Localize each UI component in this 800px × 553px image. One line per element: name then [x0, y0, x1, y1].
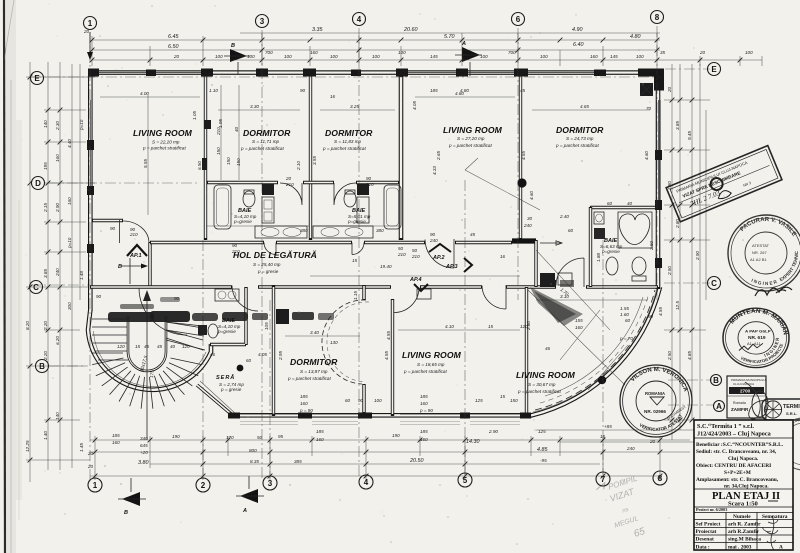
- svg-text:2.50: 2.50: [649, 241, 654, 251]
- svg-text:185: 185: [300, 394, 308, 399]
- svg-text:3.40: 3.40: [310, 330, 319, 335]
- svg-text:2.20: 2.20: [43, 321, 48, 331]
- svg-text:30: 30: [527, 216, 533, 221]
- svg-text:385: 385: [294, 459, 302, 464]
- svg-text:B: B: [39, 362, 45, 371]
- svg-text:60: 60: [625, 318, 631, 323]
- svg-text:S = 22,20 mp: S = 22,20 mp: [152, 140, 180, 145]
- svg-text:AP.3: AP.3: [445, 264, 458, 270]
- svg-text:2.65: 2.65: [436, 151, 441, 161]
- svg-text:2.90: 2.90: [695, 251, 700, 261]
- svg-text:S+P+2E+M: S+P+2E+M: [724, 470, 751, 476]
- svg-text:380: 380: [300, 228, 308, 233]
- svg-text:380: 380: [376, 228, 384, 233]
- svg-text:100: 100: [372, 54, 380, 59]
- svg-text:p = gresie: p = gresie: [257, 269, 279, 274]
- svg-text:100: 100: [215, 54, 223, 59]
- svg-text:16: 16: [330, 94, 336, 99]
- svg-text:LIVING ROOM: LIVING ROOM: [443, 125, 503, 135]
- svg-text:p = parchet stratificat: p = parchet stratificat: [322, 146, 366, 151]
- svg-text:LIVING ROOM: LIVING ROOM: [133, 128, 193, 138]
- svg-text:p=10: p=10: [79, 119, 84, 131]
- svg-text:6: 6: [516, 15, 521, 24]
- svg-text:3.55: 3.55: [312, 156, 317, 165]
- svg-text:Desenat: Desenat: [696, 537, 714, 543]
- svg-text:45: 45: [144, 344, 150, 349]
- svg-text:ZAMFIR: ZAMFIR: [731, 407, 749, 412]
- svg-text:240: 240: [55, 268, 60, 277]
- svg-text:9.45: 9.45: [687, 131, 692, 140]
- svg-text:4.60: 4.60: [529, 191, 534, 200]
- svg-text:C: C: [33, 283, 39, 292]
- svg-text:15: 15: [500, 394, 506, 399]
- svg-text:E: E: [711, 65, 717, 74]
- svg-text:15: 15: [135, 344, 141, 349]
- svg-text:60: 60: [607, 201, 613, 206]
- svg-text:p = parchet stratificat: p = parchet stratificat: [287, 376, 331, 381]
- svg-text:160: 160: [67, 197, 72, 205]
- svg-text:2700: 2700: [740, 389, 751, 394]
- svg-text:160: 160: [590, 54, 598, 59]
- svg-text:2.95: 2.95: [278, 351, 283, 361]
- svg-text:4.85: 4.85: [687, 351, 692, 360]
- svg-text:90: 90: [366, 176, 372, 181]
- svg-text:3.85: 3.85: [675, 121, 680, 130]
- svg-text:B: B: [124, 510, 128, 516]
- svg-text:140: 140: [55, 412, 60, 420]
- svg-text:60: 60: [345, 398, 351, 403]
- svg-text:1.05: 1.05: [192, 111, 197, 120]
- svg-text:20: 20: [667, 86, 672, 93]
- svg-text:1.48: 1.48: [79, 271, 84, 280]
- svg-text:A: A: [779, 545, 783, 551]
- svg-text:CLUJ-NAPOCA: CLUJ-NAPOCA: [733, 382, 754, 386]
- svg-text:p = parchet stratificat: p = parchet stratificat: [142, 146, 186, 151]
- svg-text:160: 160: [112, 440, 120, 445]
- svg-text:Scara 1:50: Scara 1:50: [728, 501, 759, 508]
- svg-text:p=gresie: p=gresie: [601, 249, 620, 254]
- svg-text:155: 155: [575, 318, 583, 323]
- svg-text:20.60: 20.60: [403, 27, 418, 33]
- svg-text:240: 240: [626, 446, 635, 451]
- svg-text:40: 40: [234, 126, 239, 132]
- svg-text:S = 24,73 mp: S = 24,73 mp: [566, 136, 594, 141]
- svg-text:4.10: 4.10: [445, 324, 454, 329]
- svg-text:2.80: 2.80: [526, 321, 531, 331]
- svg-text:A PAP GbLP: A PAP GbLP: [745, 329, 771, 334]
- svg-text:46: 46: [210, 352, 216, 357]
- svg-text:800: 800: [249, 448, 257, 453]
- svg-text:A: A: [242, 508, 247, 514]
- svg-text:190: 190: [392, 433, 400, 438]
- svg-text:p=gresie: p=gresie: [217, 329, 236, 334]
- svg-text:Cluj Napoca.: Cluj Napoca.: [728, 456, 759, 462]
- svg-text:4.40: 4.40: [67, 139, 72, 148]
- svg-text:1.60: 1.60: [620, 312, 629, 317]
- svg-text:S.R.L.: S.R.L.: [786, 411, 797, 416]
- svg-text:210: 210: [285, 182, 294, 187]
- svg-text:4.33: 4.33: [432, 166, 437, 175]
- svg-text:175: 175: [149, 370, 155, 379]
- svg-text:2.10: 2.10: [296, 161, 301, 171]
- svg-text:LIVING ROOM: LIVING ROOM: [402, 350, 462, 360]
- svg-text:1.10: 1.10: [209, 88, 218, 93]
- svg-text:3.35: 3.35: [312, 27, 323, 33]
- svg-text:6.45: 6.45: [168, 34, 179, 40]
- svg-text:S = 25,40 mp: S = 25,40 mp: [253, 262, 281, 267]
- svg-text:1.40: 1.40: [43, 431, 48, 440]
- svg-text:40: 40: [627, 201, 633, 206]
- svg-text:150: 150: [510, 398, 518, 403]
- svg-text:140: 140: [43, 120, 48, 128]
- svg-text:20: 20: [649, 439, 656, 444]
- svg-text:240: 240: [523, 223, 532, 228]
- svg-text:p=gresie: p=gresie: [347, 219, 366, 224]
- svg-text:AP.4: AP.4: [409, 277, 422, 283]
- svg-text:C: C: [711, 279, 717, 288]
- svg-text:46: 46: [545, 346, 551, 351]
- svg-text:90: 90: [232, 243, 238, 248]
- svg-text:40: 40: [170, 344, 176, 349]
- svg-text:4.65: 4.65: [580, 104, 589, 109]
- svg-text:3.25: 3.25: [350, 104, 359, 109]
- svg-text:645: 645: [140, 443, 148, 448]
- svg-text:mai . 2003: mai . 2003: [728, 545, 752, 551]
- svg-text:90: 90: [110, 226, 116, 231]
- svg-text:160: 160: [300, 401, 308, 406]
- svg-text:4.80: 4.80: [630, 34, 641, 40]
- svg-text:p = parchet stratificat: p = parchet stratificat: [555, 143, 599, 148]
- svg-text:2.40: 2.40: [559, 214, 569, 219]
- svg-text:4: 4: [357, 15, 362, 24]
- svg-text:4.55: 4.55: [386, 331, 391, 340]
- svg-text:100: 100: [398, 50, 406, 55]
- svg-text:Beneficiar :S.C.“NCOUNTER”S.R.: Beneficiar :S.C.“NCOUNTER”S.R.L.: [696, 442, 784, 448]
- svg-text:45: 45: [157, 344, 163, 349]
- svg-text:Proiect nr. 6/2003: Proiect nr. 6/2003: [696, 507, 727, 512]
- svg-text:90: 90: [358, 398, 364, 403]
- svg-text:B: B: [118, 264, 122, 270]
- svg-text:210: 210: [397, 252, 406, 257]
- svg-text:160: 160: [55, 154, 60, 162]
- svg-text:2.15: 2.15: [43, 203, 48, 213]
- svg-text:105: 105: [264, 322, 269, 330]
- svg-text:150: 150: [226, 157, 231, 165]
- svg-text:15: 15: [352, 258, 358, 263]
- svg-text:160: 160: [310, 50, 318, 55]
- svg-text:Sediul: str. C. Brancoveanu, n: Sediul: str. C. Brancoveanu, nr. 34,: [696, 449, 777, 455]
- svg-text:240: 240: [429, 238, 438, 243]
- svg-text:210: 210: [231, 249, 240, 254]
- svg-text:4.05: 4.05: [258, 352, 267, 357]
- svg-text:20: 20: [173, 54, 180, 59]
- svg-text:D: D: [35, 179, 41, 188]
- svg-text:4.55: 4.55: [658, 307, 663, 316]
- svg-text:210: 210: [411, 254, 420, 259]
- svg-text:p = parchet stratificat: p = parchet stratificat: [517, 389, 561, 394]
- svg-text:185: 185: [420, 429, 428, 434]
- svg-text:3.85: 3.85: [43, 269, 48, 278]
- svg-text:5.70: 5.70: [444, 34, 455, 40]
- svg-text:210: 210: [129, 232, 138, 237]
- svg-text:AP.1: AP.1: [129, 253, 142, 259]
- svg-text:2.50: 2.50: [667, 351, 672, 361]
- svg-text:195: 195: [43, 162, 48, 170]
- svg-text:sing.M Bihaca: sing.M Bihaca: [728, 537, 761, 543]
- svg-text:95: 95: [278, 434, 284, 439]
- svg-text:S = 30,67 mp: S = 30,67 mp: [528, 382, 556, 387]
- svg-text:20: 20: [699, 50, 706, 55]
- svg-text:1.88: 1.88: [596, 253, 601, 262]
- svg-text:60: 60: [246, 358, 252, 363]
- svg-text:-95: -95: [540, 458, 547, 463]
- svg-text:S = 13,87 mp: S = 13,87 mp: [300, 369, 328, 374]
- svg-text:50: 50: [257, 435, 263, 440]
- svg-text:Semnatura: Semnatura: [762, 514, 788, 520]
- svg-text:DORMITOR: DORMITOR: [290, 357, 338, 367]
- svg-text:35: 35: [660, 50, 666, 55]
- svg-text:12.5: 12.5: [675, 301, 680, 310]
- svg-text:ATESTAT: ATESTAT: [752, 243, 770, 248]
- svg-text:1: 1: [88, 19, 93, 28]
- svg-text:Data :: Data :: [696, 545, 710, 551]
- svg-text:p = 70: p = 70: [619, 336, 633, 341]
- svg-text:300: 300: [67, 302, 72, 310]
- svg-text:S = 27,20 mp: S = 27,20 mp: [457, 136, 485, 141]
- svg-text:+85: +85: [604, 424, 612, 429]
- svg-text:20.50: 20.50: [409, 458, 424, 464]
- svg-text:150: 150: [236, 158, 241, 166]
- svg-text:A1 A2 B1: A1 A2 B1: [750, 257, 767, 262]
- svg-text:S = 18,65 mp: S = 18,65 mp: [417, 362, 445, 367]
- svg-text:90: 90: [174, 296, 180, 301]
- svg-text:16: 16: [500, 254, 506, 259]
- svg-text:J12/424/2003 – Cluj Napoca: J12/424/2003 – Cluj Napoca: [697, 431, 771, 438]
- svg-text:6.50: 6.50: [197, 161, 202, 170]
- svg-text:E: E: [34, 74, 40, 83]
- svg-text:185: 185: [112, 433, 120, 438]
- svg-text:4.80: 4.80: [460, 88, 469, 93]
- svg-text:2.90: 2.90: [55, 203, 60, 213]
- svg-text:AP.2: AP.2: [432, 255, 445, 261]
- svg-text:8: 8: [655, 13, 660, 22]
- svg-text:185: 185: [316, 429, 324, 434]
- svg-text:NR. 267: NR. 267: [752, 250, 767, 255]
- svg-text:2: 2: [201, 481, 206, 490]
- svg-text:4.05: 4.05: [412, 101, 417, 110]
- svg-text:100: 100: [745, 50, 753, 55]
- svg-text:S = 11,71 mp: S = 11,71 mp: [252, 139, 280, 144]
- svg-text:4.60: 4.60: [644, 151, 649, 160]
- svg-text:Sef Proiect: Sef Proiect: [696, 522, 721, 528]
- svg-text:ROMANIA: ROMANIA: [645, 391, 665, 396]
- svg-text:2.50: 2.50: [667, 266, 672, 276]
- svg-text:90: 90: [300, 88, 306, 93]
- svg-text:20: 20: [83, 29, 90, 34]
- svg-text:100: 100: [540, 54, 548, 59]
- svg-text:NR. 619: NR. 619: [748, 335, 766, 340]
- svg-text:4.90: 4.90: [572, 27, 583, 33]
- svg-text:NR. 02966: NR. 02966: [644, 409, 666, 414]
- svg-text:Romada: Romada: [733, 401, 746, 405]
- svg-text:3.30: 3.30: [250, 104, 259, 109]
- svg-text:100: 100: [247, 54, 255, 59]
- svg-text:160: 160: [420, 401, 428, 406]
- svg-text:2.90: 2.90: [488, 429, 498, 434]
- svg-text:+20: +20: [140, 450, 148, 455]
- svg-text:S.C.“Termita 1 ” s.r.l.: S.C.“Termita 1 ” s.r.l.: [697, 423, 754, 430]
- svg-text:50: 50: [412, 248, 418, 253]
- svg-text:90: 90: [648, 314, 654, 319]
- svg-text:19.40: 19.40: [380, 264, 392, 269]
- svg-text:HOL DE LEGĂTURĂ: HOL DE LEGĂTURĂ: [233, 249, 317, 260]
- svg-text:6.20: 6.20: [55, 336, 60, 345]
- svg-text:60: 60: [568, 228, 574, 233]
- svg-text:arh R.Zamfir: arh R.Zamfir: [728, 529, 760, 535]
- svg-text:6.50: 6.50: [168, 44, 179, 50]
- svg-text:A: A: [716, 402, 722, 411]
- svg-text:Numele: Numele: [733, 514, 751, 520]
- svg-text:3: 3: [268, 479, 273, 488]
- svg-text:70: 70: [646, 106, 652, 111]
- svg-text:6.40: 6.40: [573, 42, 584, 48]
- svg-text:15: 15: [488, 324, 494, 329]
- svg-text:145: 145: [430, 54, 438, 59]
- svg-text:TERMITA: TERMITA: [783, 404, 800, 410]
- svg-text:3.80: 3.80: [138, 460, 149, 466]
- svg-text:DORMITOR: DORMITOR: [325, 128, 373, 138]
- svg-text:4.55: 4.55: [384, 351, 389, 360]
- svg-text:p = 90: p = 90: [419, 408, 433, 413]
- svg-text:185: 185: [420, 394, 428, 399]
- svg-text:p = parchet stratificat: p = parchet stratificat: [448, 143, 492, 148]
- svg-text:1.15: 1.15: [353, 291, 358, 300]
- svg-text:p = gresie: p = gresie: [220, 387, 242, 392]
- svg-text:100: 100: [636, 54, 644, 59]
- svg-text:185: 185: [430, 88, 438, 93]
- svg-text:Amplasament: str. C. Brancovea: Amplasament: str. C. Brancoveanu,: [696, 477, 779, 483]
- svg-text:210: 210: [365, 182, 374, 187]
- svg-text:LIVING ROOM: LIVING ROOM: [516, 370, 576, 380]
- svg-text:120: 120: [117, 344, 125, 349]
- svg-text:8.35: 8.35: [250, 459, 259, 464]
- svg-text:100: 100: [284, 54, 292, 59]
- svg-text:14.30: 14.30: [466, 439, 480, 445]
- svg-text:1: 1: [93, 481, 98, 490]
- svg-text:B: B: [231, 43, 235, 49]
- svg-text:100: 100: [480, 54, 488, 59]
- svg-text:150: 150: [216, 147, 221, 155]
- svg-text:700: 700: [265, 50, 273, 55]
- svg-text:90: 90: [96, 294, 102, 299]
- svg-text:p = 90: p = 90: [299, 408, 313, 413]
- svg-text:1.95: 1.95: [218, 119, 223, 128]
- svg-text:50: 50: [398, 246, 404, 251]
- svg-text:4.85: 4.85: [537, 447, 548, 453]
- svg-text:90: 90: [430, 232, 436, 237]
- svg-text:p = parchet stratificat: p = parchet stratificat: [403, 369, 447, 374]
- svg-text:8.20: 8.20: [25, 321, 30, 330]
- svg-text:145: 145: [610, 54, 618, 59]
- svg-text:1.55: 1.55: [620, 306, 629, 311]
- svg-text:p=gresie: p=gresie: [233, 219, 252, 224]
- svg-text:arh R. Zamfir: arh R. Zamfir: [728, 522, 761, 528]
- svg-text:Obiect: CENTRU DE AFACERI: Obiect: CENTRU DE AFACERI: [696, 463, 771, 469]
- svg-text:125: 125: [475, 398, 483, 403]
- svg-text:20: 20: [87, 464, 94, 469]
- svg-text:SERĂ: SERĂ: [216, 374, 235, 381]
- svg-text:5.55: 5.55: [143, 159, 148, 168]
- svg-text:p=10: p=10: [67, 237, 72, 249]
- svg-text:700: 700: [508, 50, 516, 55]
- svg-text:130: 130: [330, 340, 338, 345]
- svg-text:160: 160: [316, 437, 324, 442]
- svg-text:1.45: 1.45: [79, 443, 84, 452]
- svg-text:nr. 34,Cluj Napoca.: nr. 34,Cluj Napoca.: [724, 484, 769, 490]
- svg-text:100: 100: [330, 54, 338, 59]
- svg-text:45: 45: [470, 232, 476, 237]
- svg-text:DORMITOR: DORMITOR: [243, 128, 291, 138]
- svg-text:190: 190: [172, 434, 180, 439]
- svg-text:160: 160: [575, 325, 583, 330]
- svg-text:160: 160: [420, 437, 428, 442]
- svg-text:20: 20: [285, 176, 292, 181]
- svg-text:S = 11,83 mp: S = 11,83 mp: [334, 139, 362, 144]
- svg-text:2.30: 2.30: [55, 121, 60, 131]
- svg-text:DORMITOR: DORMITOR: [556, 125, 604, 135]
- svg-text:100: 100: [374, 398, 382, 403]
- svg-text:2.20: 2.20: [43, 351, 48, 361]
- svg-text:12.25: 12.25: [25, 440, 30, 452]
- svg-text:Proiectat: Proiectat: [696, 529, 717, 535]
- svg-text:p = parchet stratificat: p = parchet stratificat: [240, 146, 284, 151]
- svg-text:B: B: [713, 376, 719, 385]
- svg-text:45: 45: [520, 88, 526, 93]
- svg-text:3: 3: [260, 17, 265, 26]
- svg-text:4.55: 4.55: [521, 151, 526, 160]
